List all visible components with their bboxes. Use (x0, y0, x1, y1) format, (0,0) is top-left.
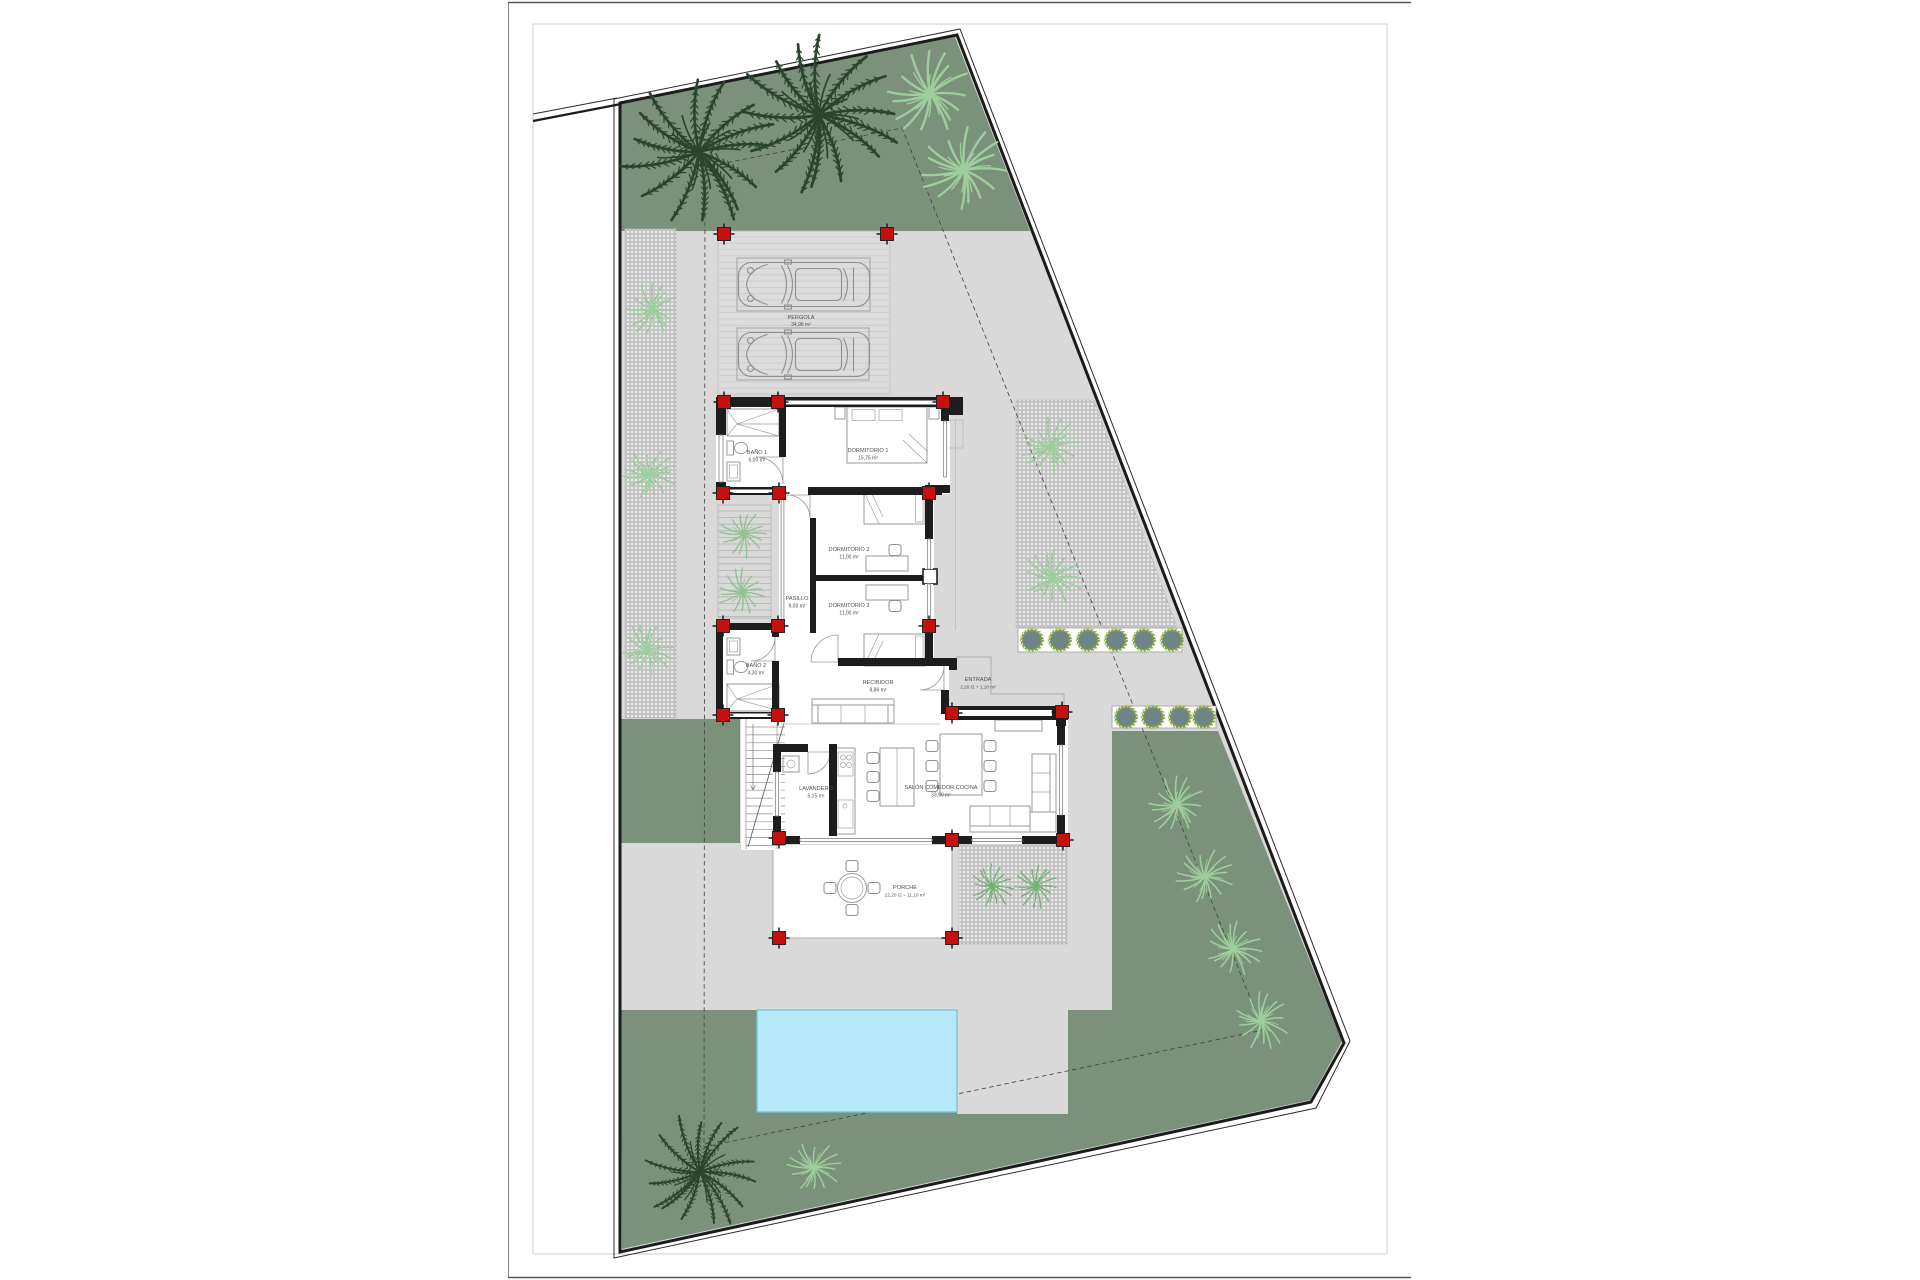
svg-text:BAÑO 1: BAÑO 1 (747, 449, 768, 456)
svg-text:2,20 /2 + 1,10 m²: 2,20 /2 + 1,10 m² (960, 685, 996, 690)
svg-text:DORMITORIO 1: DORMITORIO 1 (848, 448, 889, 454)
svg-text:PERGOLA: PERGOLA (787, 315, 814, 321)
svg-text:34,96 m²: 34,96 m² (791, 322, 811, 328)
svg-text:15,75 m²: 15,75 m² (858, 456, 878, 462)
svg-text:11,00 m²: 11,00 m² (839, 611, 859, 617)
svg-text:6,00 m²: 6,00 m² (749, 458, 766, 464)
svg-text:ENTRADA: ENTRADA (965, 677, 992, 683)
svg-text:5,15 m²: 5,15 m² (808, 794, 825, 800)
svg-text:8,86 m²: 8,86 m² (870, 688, 887, 694)
svg-text:33,90 m²: 33,90 m² (931, 793, 951, 799)
svg-text:PASILLO: PASILLO (786, 596, 810, 602)
svg-text:9,00 m²: 9,00 m² (789, 604, 806, 610)
svg-text:PORCHE: PORCHE (893, 885, 917, 891)
svg-text:DORMITORIO 3: DORMITORIO 3 (829, 603, 870, 609)
svg-text:11,00 m²: 11,00 m² (839, 555, 859, 561)
svg-text:SALÓN COMEDOR COCINA: SALÓN COMEDOR COCINA (904, 784, 977, 791)
svg-text:22,20 /2 = 11,10 m²: 22,20 /2 = 11,10 m² (885, 893, 926, 898)
svg-text:LAVANDERO: LAVANDERO (799, 786, 833, 792)
svg-text:RECIBIDOR: RECIBIDOR (862, 680, 893, 686)
svg-text:4,30 m²: 4,30 m² (748, 671, 765, 677)
svg-text:DORMITORIO 2: DORMITORIO 2 (829, 547, 870, 553)
svg-text:BAÑO 2: BAÑO 2 (746, 662, 767, 669)
